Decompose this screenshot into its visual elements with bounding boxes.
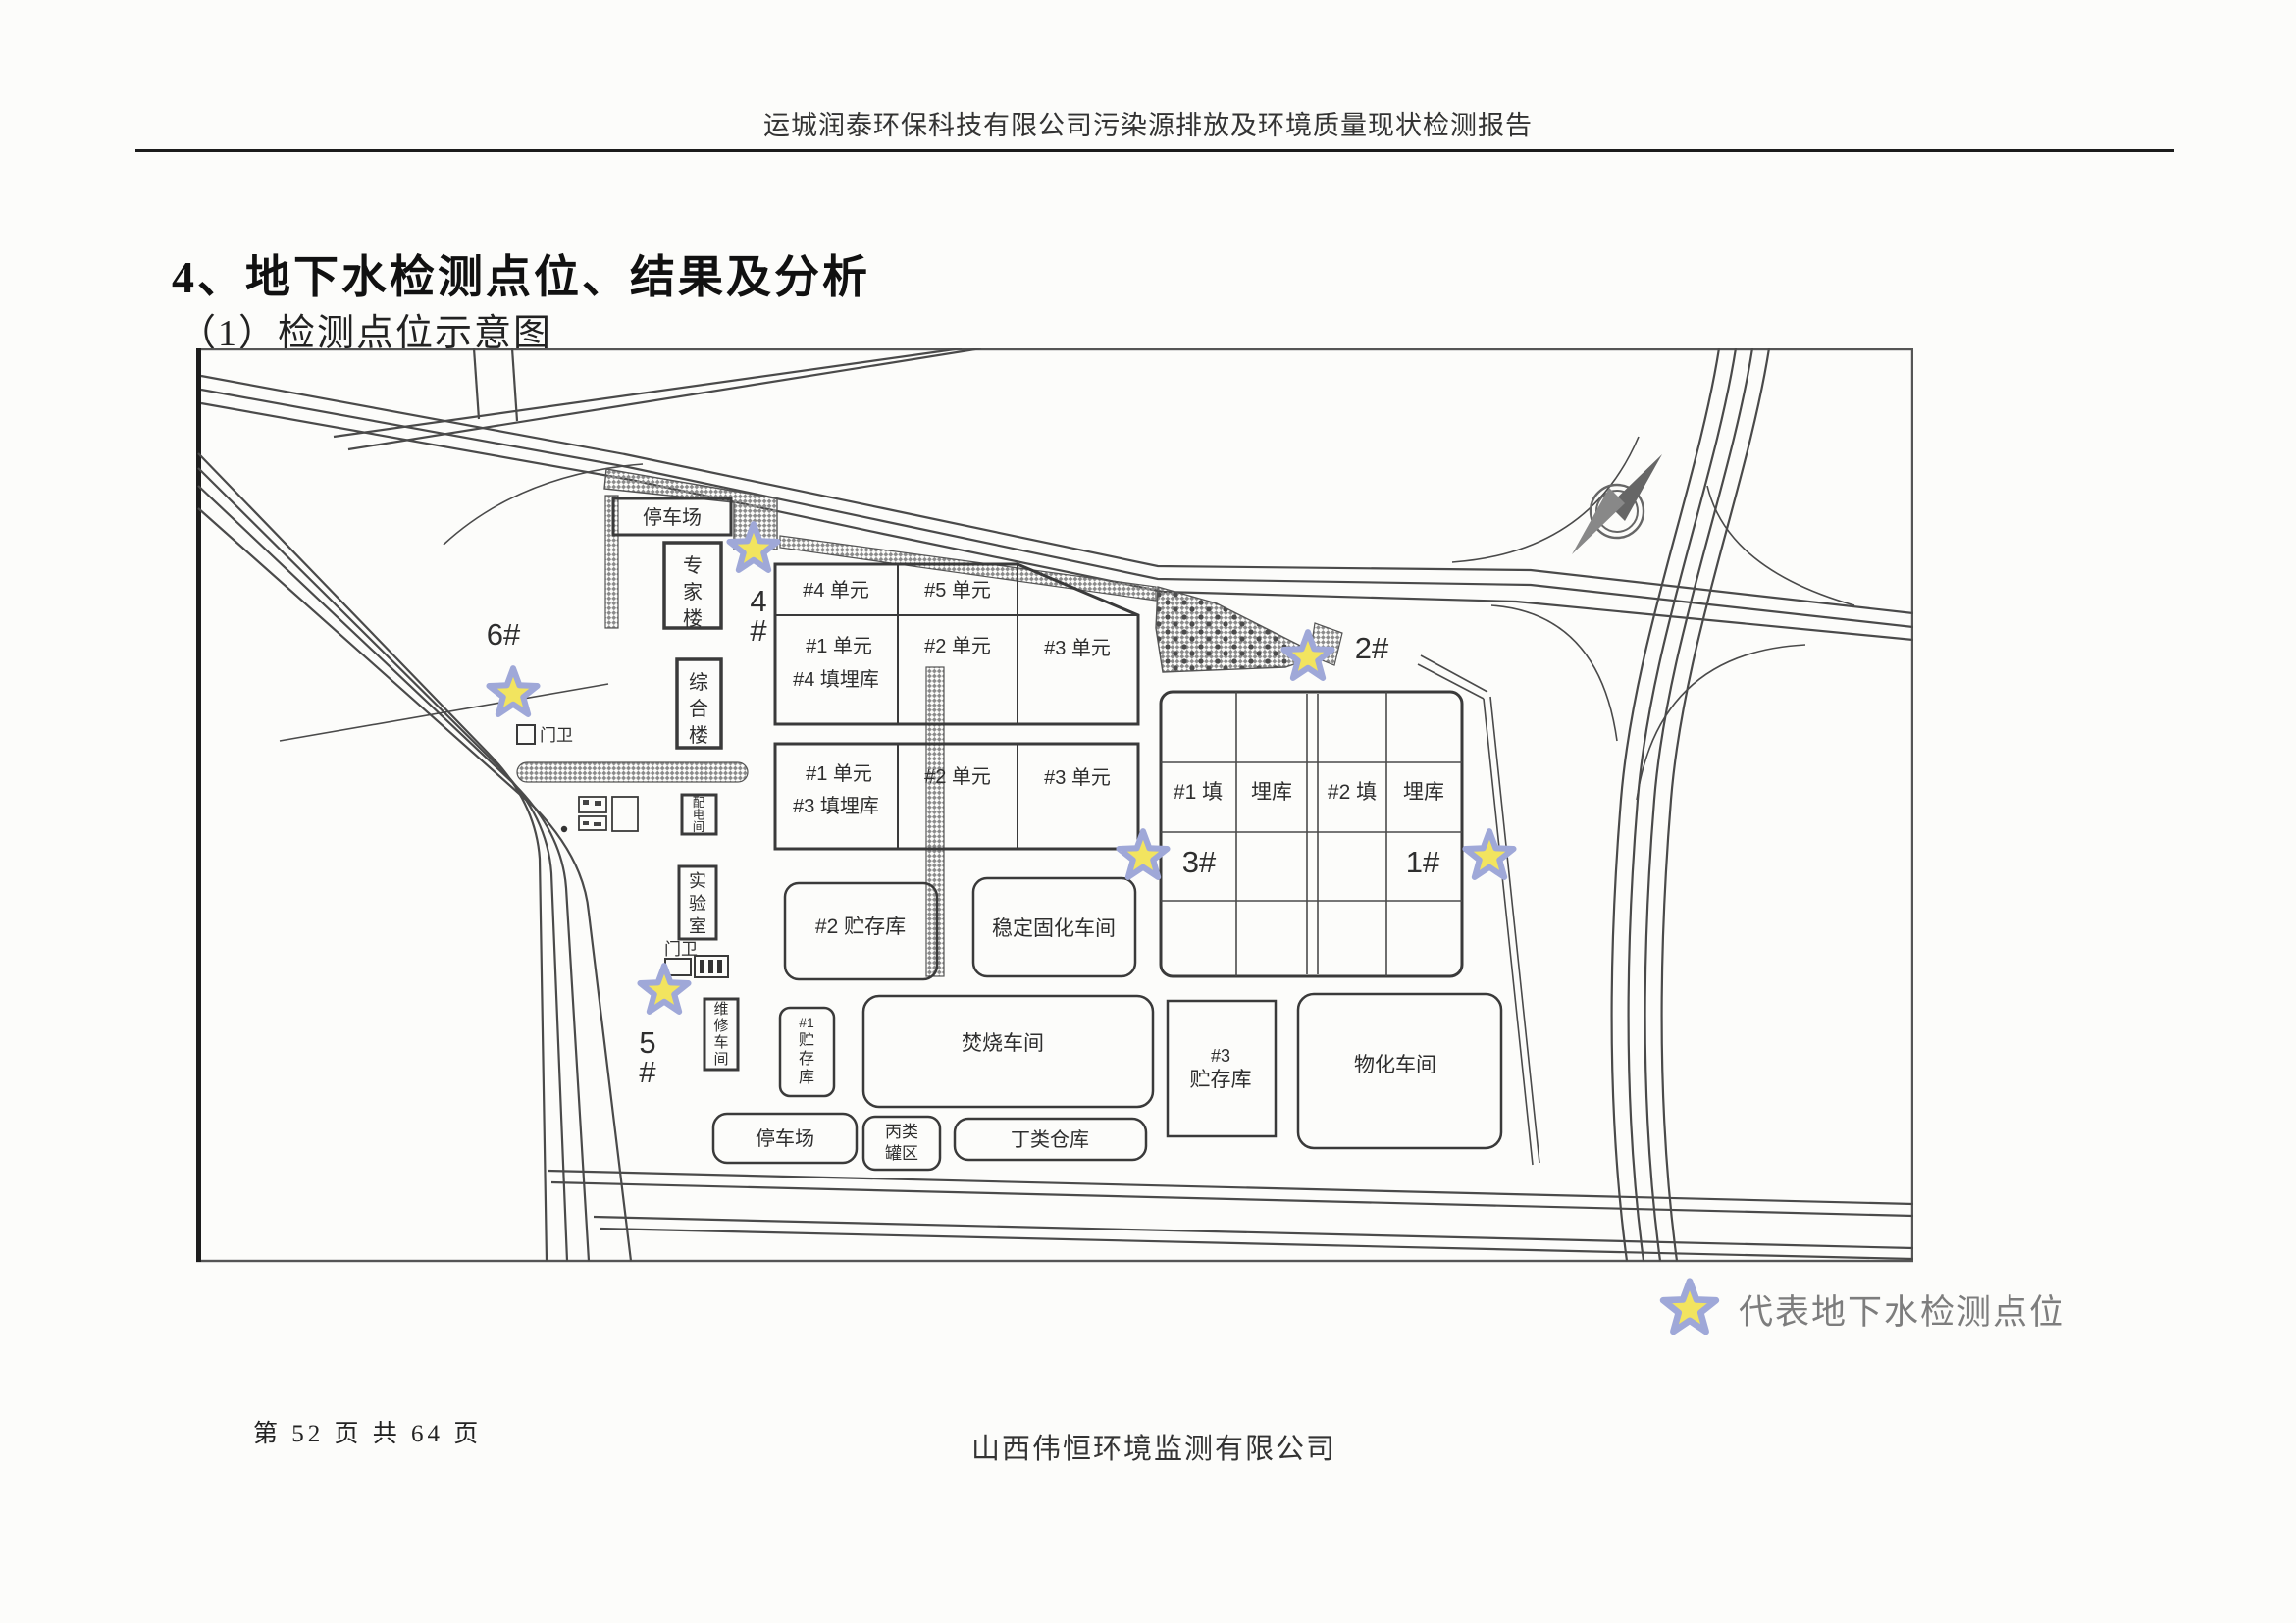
monitoring-point-5-label-2: # [639, 1055, 656, 1089]
header-rule [135, 149, 2174, 152]
internal-road-vertical [926, 667, 944, 976]
landfill-grid-b: #1 单元 #3 填埋库 #2 单元 #3 单元 [775, 744, 1138, 849]
expert-building-label: 专家楼 [683, 554, 703, 630]
tank-area-label-1: 丙类 [885, 1123, 918, 1141]
storage3-name: 贮存库 [1190, 1069, 1252, 1091]
stabilization-shop-label: 稳定固化车间 [992, 917, 1116, 940]
grid-a-r2c1a: #1 单元 [806, 635, 872, 657]
header-title: 运城润泰环保科技有限公司污染源排放及环境质量现状检测报告 [0, 104, 2296, 142]
footer-company: 山西伟恒环境监测有限公司 [971, 1426, 1336, 1467]
utility-boxes [561, 797, 638, 832]
parking-bottom-label: 停车场 [756, 1127, 814, 1150]
incineration-shop-label: 焚烧车间 [962, 1032, 1044, 1055]
monitoring-point-3-label: 3# [1182, 845, 1217, 879]
grid-a-r2c1b: #4 填埋库 [793, 668, 879, 691]
storage1-name: 贮存库 [799, 1031, 814, 1086]
storage2-label: #2 贮存库 [815, 916, 906, 938]
grid-b-c1a: #1 单元 [806, 762, 872, 785]
monitoring-point-1-label: 1# [1406, 845, 1440, 879]
office-building-label: 综合楼 [689, 671, 708, 747]
legend-text: 代表地下水检测点位 [1739, 1284, 2065, 1335]
grid-a-r2c2: #2 单元 [924, 635, 991, 657]
maintenance-shop-label: 维修车间 [713, 1001, 728, 1068]
gate-lower-label: 门卫 [664, 940, 698, 959]
grid-a-r1c2: #5 单元 [924, 579, 991, 602]
grid-a-r1c1: #4 单元 [803, 579, 869, 602]
grid-b-c3: #3 单元 [1044, 766, 1111, 789]
monitoring-point-4-label-2: # [750, 613, 767, 648]
section-heading: 4、地下水检测点位、结果及分析 [172, 241, 870, 306]
report-page: 运城润泰环保科技有限公司污染源排放及环境质量现状检测报告 4、地下水检测点位、结… [0, 0, 2296, 1623]
grid-b-c1b: #3 填埋库 [793, 795, 879, 817]
grid-r-l2b: 埋库 [1403, 781, 1444, 804]
legend-star-icon [1656, 1276, 1723, 1342]
grid-b-c2: #2 单元 [924, 765, 991, 788]
north-compass-icon [1572, 454, 1662, 554]
monitoring-point-2-label: 2# [1355, 631, 1389, 665]
grid-a-r2c3: #3 单元 [1044, 637, 1111, 659]
gate-lower: 门卫 [664, 940, 728, 977]
site-plan: 停车场 专家楼 综合楼 门卫 配电间 实验室 门卫 [196, 348, 1913, 1263]
monitoring-point-1-star [1465, 831, 1513, 877]
monitoring-point-6-star [489, 668, 537, 714]
legend: 代表地下水检测点位 [1656, 1276, 2065, 1342]
monitoring-point-5-star [640, 966, 688, 1012]
tank-area-label-2: 罐区 [885, 1144, 918, 1163]
grid-r-l1b: 埋库 [1251, 781, 1292, 804]
site-plan-svg: 停车场 专家楼 综合楼 门卫 配电间 实验室 门卫 [196, 348, 1913, 1263]
grid-r-l2a: #2 填 [1328, 781, 1377, 804]
buildings: 停车场 专家楼 综合楼 门卫 配电间 实验室 门卫 [517, 498, 1501, 1170]
parking-top-label: 停车场 [643, 506, 702, 529]
storage3-num: #3 [1211, 1046, 1230, 1066]
monitoring-point-6-label: 6# [487, 617, 521, 652]
gate-upper-box [517, 725, 535, 744]
footer-page-number: 第 52 页 共 64 页 [253, 1414, 482, 1449]
gate-upper-label: 门卫 [540, 726, 573, 745]
plan-frame [197, 349, 1912, 1261]
warehouse-d-label: 丁类仓库 [1011, 1128, 1089, 1151]
monitoring-points: 4 # 6# 2# 3# 1# 5 # [487, 524, 1514, 1089]
grid-r-l1a: #1 填 [1174, 781, 1223, 804]
storage1-num: #1 [799, 1015, 814, 1030]
roads [198, 348, 1913, 1261]
laboratory-label: 实验室 [689, 871, 706, 936]
landfill-grid-right: #1 填 埋库 #2 填 埋库 [1161, 692, 1462, 976]
power-room-label: 配电间 [693, 796, 705, 834]
physchem-shop-label: 物化车间 [1354, 1054, 1436, 1076]
internal-road-horizontal [517, 762, 748, 782]
